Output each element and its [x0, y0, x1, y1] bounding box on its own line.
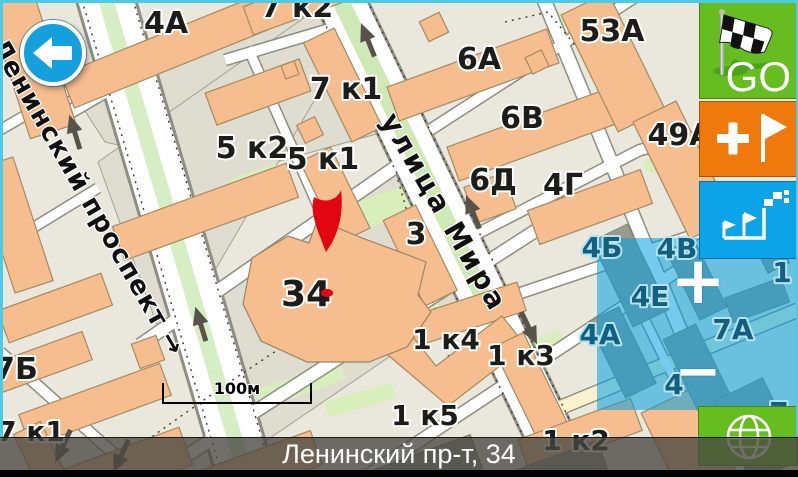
map-label-4А: 4А: [144, 6, 189, 41]
map-canvas[interactable]: Ленинский проспект →улица Мира 4А7 к27 к…: [0, 0, 798, 477]
add-waypoint-button[interactable]: [699, 101, 797, 177]
map-label-7 к2: 7 к2: [261, 0, 334, 25]
route-button[interactable]: [699, 181, 797, 259]
map-label-1: 1: [772, 256, 791, 289]
route-flags-icon: [700, 182, 798, 260]
arrow-left-icon: [24, 24, 82, 82]
bottom-strip: [0, 470, 798, 477]
map-label-1 к3: 1 к3: [487, 339, 555, 372]
map-label-4А: 4А: [579, 318, 620, 351]
map-label-7Б: 7Б: [0, 352, 38, 387]
back-button[interactable]: [20, 20, 86, 86]
scale-bar: 100м: [162, 383, 312, 404]
plus-flag-icon: [700, 102, 798, 178]
map-label-1 к5: 1 к5: [391, 399, 459, 432]
map-label-3: 3: [406, 217, 427, 252]
map-label-53А: 53А: [580, 14, 646, 49]
go-label: GO: [726, 54, 791, 100]
address-text: Ленинский пр-т, 34: [282, 439, 516, 469]
map-label-5 к1: 5 к1: [287, 142, 360, 177]
map-label-7 к1: 7 к1: [310, 72, 383, 107]
map-label-5 к2: 5 к2: [216, 131, 289, 166]
map-label-4Б: 4Б: [582, 231, 623, 264]
frame-border-top: [0, 0, 798, 3]
navigator-screen: Ленинский проспект →улица Мира 4А7 к27 к…: [0, 0, 798, 477]
map-label-4Е: 4Е: [631, 280, 670, 313]
zoom-out-button[interactable]: −: [672, 344, 724, 396]
go-button[interactable]: GO: [699, 2, 797, 99]
scale-label: 100м: [214, 379, 260, 398]
address-bar[interactable]: Ленинский пр-т, 34: [0, 437, 798, 470]
frame-border-left: [0, 0, 3, 437]
map-label-6В: 6В: [500, 101, 544, 136]
map-label-4Г: 4Г: [543, 168, 583, 203]
map-label-1 к4: 1 к4: [412, 323, 480, 356]
map-label-6А: 6А: [457, 42, 502, 77]
map-label-6Д: 6Д: [469, 163, 517, 198]
